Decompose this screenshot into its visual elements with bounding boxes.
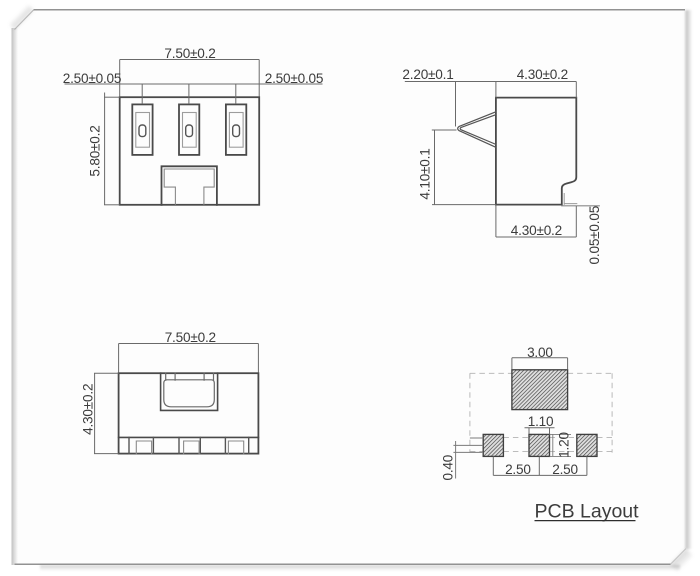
svg-text:1.10: 1.10: [528, 414, 554, 429]
svg-text:7.50±0.2: 7.50±0.2: [164, 46, 215, 61]
svg-text:7.50±0.2: 7.50±0.2: [165, 330, 216, 345]
svg-text:0.05±0.05: 0.05±0.05: [587, 206, 602, 265]
svg-text:3.00: 3.00: [527, 345, 553, 360]
svg-text:2.50±0.05: 2.50±0.05: [63, 71, 122, 86]
svg-text:4.30±0.2: 4.30±0.2: [517, 67, 568, 82]
svg-text:4.10±0.1: 4.10±0.1: [418, 148, 433, 199]
svg-text:4.30±0.2: 4.30±0.2: [81, 384, 96, 435]
svg-text:2.20±0.1: 2.20±0.1: [402, 67, 453, 82]
svg-text:2.50: 2.50: [505, 462, 531, 477]
svg-text:2.50: 2.50: [552, 462, 578, 477]
svg-text:4.30±0.2: 4.30±0.2: [511, 223, 562, 238]
svg-text:2.50±0.05: 2.50±0.05: [265, 71, 324, 86]
svg-text:1.20: 1.20: [557, 432, 572, 458]
svg-text:5.80±0.2: 5.80±0.2: [88, 125, 103, 176]
svg-text:0.40: 0.40: [441, 454, 456, 480]
svg-text:PCB Layout: PCB Layout: [535, 501, 640, 523]
